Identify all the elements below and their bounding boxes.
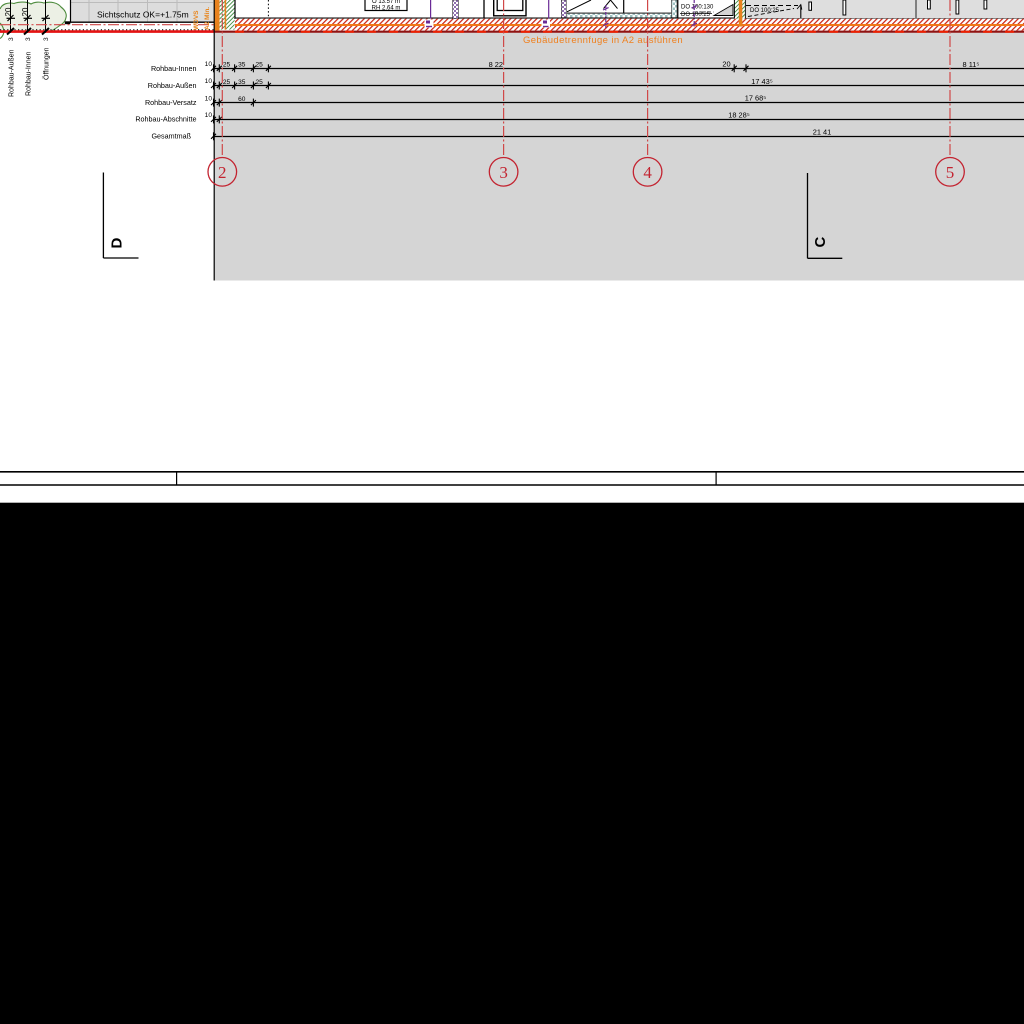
- svg-text:Rohbau-Innen: Rohbau-Innen: [26, 52, 33, 96]
- svg-text:3: 3: [8, 37, 15, 41]
- svg-text:20: 20: [722, 59, 730, 68]
- svg-text:3: 3: [25, 37, 32, 41]
- svg-text:RH 2.64 m: RH 2.64 m: [372, 6, 401, 12]
- svg-text:A2 Min.: A2 Min.: [204, 7, 211, 30]
- svg-text:4: 4: [643, 163, 652, 182]
- svg-text:3: 3: [499, 163, 508, 182]
- svg-text:25: 25: [256, 79, 264, 86]
- svg-text:25: 25: [223, 62, 231, 69]
- svg-text:21 41: 21 41: [813, 127, 832, 136]
- svg-text:35: 35: [238, 62, 246, 69]
- svg-text:Gesamtmaß: Gesamtmaß: [151, 132, 191, 141]
- svg-text:10: 10: [205, 78, 213, 85]
- svg-text:C: C: [812, 237, 829, 248]
- svg-text:17 68⁵: 17 68⁵: [745, 94, 767, 103]
- svg-text:Rohbau-Innen: Rohbau-Innen: [151, 64, 197, 73]
- svg-text:DO 100:25: DO 100:25: [750, 8, 780, 14]
- svg-text:Ö 13.57 m: Ö 13.57 m: [372, 0, 400, 5]
- svg-text:20: 20: [21, 7, 30, 16]
- svg-text:25: 25: [256, 62, 264, 69]
- svg-text:18 28⁵: 18 28⁵: [728, 110, 750, 119]
- svg-text:Rohbau-Außen: Rohbau-Außen: [148, 81, 197, 90]
- svg-text:8 22: 8 22: [489, 60, 503, 69]
- svg-text:DO 100:130: DO 100:130: [681, 5, 714, 11]
- svg-text:3: 3: [43, 37, 50, 41]
- svg-text:Rohbau-Versatz: Rohbau-Versatz: [145, 98, 197, 107]
- svg-text:10: 10: [205, 61, 213, 68]
- svg-text:10: 10: [205, 112, 213, 119]
- svg-text:Sichtschutz OK=+1.75m: Sichtschutz OK=+1.75m: [97, 10, 189, 20]
- svg-text:17 43⁵: 17 43⁵: [751, 77, 773, 86]
- svg-text:60: 60: [238, 96, 246, 103]
- svg-text:Gebäudetrennfuge in A2 ausführ: Gebäudetrennfuge in A2 ausführen: [523, 35, 683, 46]
- svg-text:Öffnungen: Öffnungen: [43, 47, 51, 80]
- svg-text:10: 10: [205, 95, 213, 102]
- svg-text:35: 35: [238, 79, 246, 86]
- svg-text:2: 2: [218, 163, 227, 182]
- svg-text:Rohbau-Außen: Rohbau-Außen: [9, 49, 16, 97]
- svg-text:25: 25: [223, 79, 231, 86]
- svg-text:D: D: [109, 238, 126, 249]
- svg-text:Rohbau-Abschnitte: Rohbau-Abschnitte: [135, 115, 196, 124]
- svg-text:20: 20: [4, 7, 13, 16]
- svg-text:8 11⁵: 8 11⁵: [963, 60, 980, 69]
- svg-text:DO 100:25: DO 100:25: [681, 12, 711, 18]
- svg-text:5: 5: [946, 163, 955, 182]
- svg-text:WDVS: WDVS: [193, 10, 200, 30]
